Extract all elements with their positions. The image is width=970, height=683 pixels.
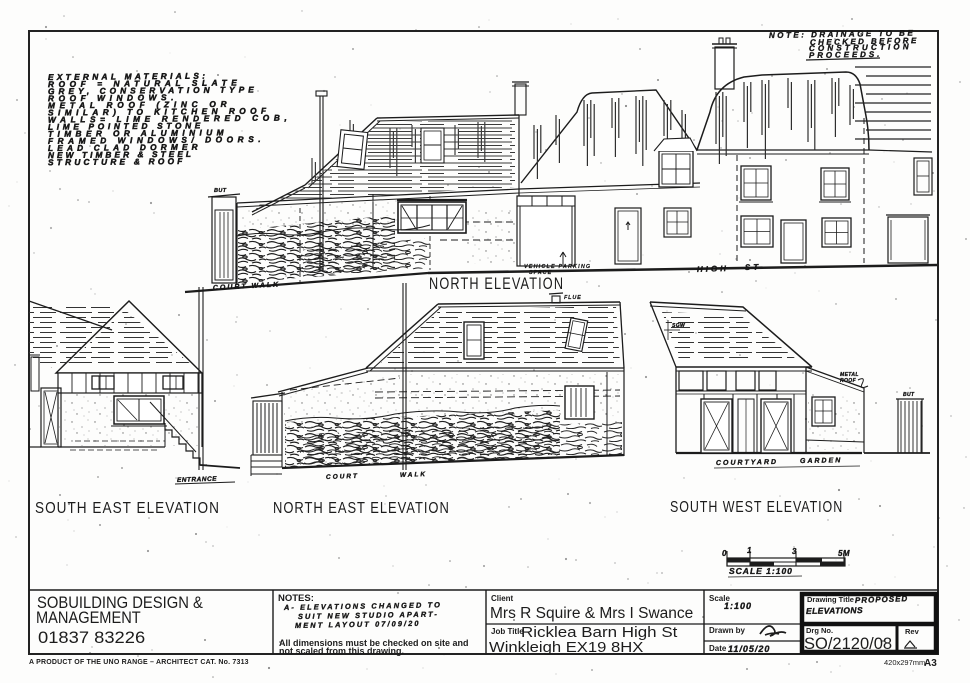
svg-text:01837 83226: 01837 83226 bbox=[38, 628, 145, 647]
svg-text:SO/2120/08: SO/2120/08 bbox=[804, 635, 892, 653]
svg-text:Rev: Rev bbox=[905, 627, 920, 636]
svg-text:GARDEN: GARDEN bbox=[800, 457, 842, 465]
svg-text:1: 1 bbox=[747, 546, 752, 555]
svg-text:Job Title: Job Title bbox=[491, 627, 524, 636]
svg-text:WALK: WALK bbox=[400, 471, 427, 479]
svg-text:HIGH: HIGH bbox=[697, 264, 729, 274]
svg-text:Drg No.: Drg No. bbox=[806, 626, 833, 635]
svg-text:Mrs R Squire & Mrs I Swance: Mrs R Squire & Mrs I Swance bbox=[490, 605, 693, 622]
svg-text:not scaled from this drawing.: not scaled from this drawing. bbox=[279, 646, 404, 656]
svg-text:NORTH ELEVATION: NORTH ELEVATION bbox=[429, 276, 564, 294]
svg-text:A PRODUCT OF THE UNO RANGE – A: A PRODUCT OF THE UNO RANGE – ARCHITECT C… bbox=[29, 659, 249, 666]
svg-text:STRUCTURE & ROOF: STRUCTURE & ROOF bbox=[48, 156, 186, 167]
svg-text:A3: A3 bbox=[924, 658, 937, 669]
svg-text:11/05/20: 11/05/20 bbox=[728, 644, 770, 654]
svg-text:SCALE 1:100: SCALE 1:100 bbox=[729, 566, 793, 576]
svg-text:Date: Date bbox=[709, 644, 727, 653]
svg-text:COURT: COURT bbox=[326, 473, 359, 481]
svg-text:3: 3 bbox=[792, 547, 797, 556]
svg-text:Client: Client bbox=[491, 594, 514, 603]
svg-text:Winkleigh EX19 8HX: Winkleigh EX19 8HX bbox=[489, 640, 644, 656]
svg-text:Drawing Title: Drawing Title bbox=[807, 595, 854, 604]
svg-text:SOUTH EAST ELEVATION: SOUTH EAST ELEVATION bbox=[35, 500, 220, 517]
svg-text:420x297mm: 420x297mm bbox=[884, 658, 925, 667]
svg-text:BUT: BUT bbox=[903, 392, 915, 398]
svg-text:1:100: 1:100 bbox=[724, 601, 752, 611]
svg-text:PROPOSED: PROPOSED bbox=[855, 594, 909, 605]
svg-text:ST: ST bbox=[745, 262, 762, 272]
svg-text:ELEVATIONS: ELEVATIONS bbox=[806, 605, 863, 616]
svg-text:COURTYARD: COURTYARD bbox=[716, 459, 778, 467]
svg-text:BUT: BUT bbox=[214, 188, 227, 194]
svg-text:Drawn by: Drawn by bbox=[709, 626, 746, 635]
svg-text:ROOF: ROOF bbox=[840, 378, 857, 384]
svg-text:SGW: SGW bbox=[672, 323, 686, 329]
svg-text:SOUTH WEST ELEVATION: SOUTH WEST ELEVATION bbox=[670, 499, 843, 517]
svg-text:FLUE: FLUE bbox=[564, 295, 582, 301]
svg-text:5M: 5M bbox=[838, 549, 850, 558]
svg-text:Ricklea Barn High St: Ricklea Barn High St bbox=[521, 625, 678, 641]
svg-text:0: 0 bbox=[722, 549, 727, 558]
svg-text:MANAGEMENT: MANAGEMENT bbox=[36, 609, 141, 627]
svg-text:NORTH EAST ELEVATION: NORTH EAST ELEVATION bbox=[273, 500, 450, 518]
